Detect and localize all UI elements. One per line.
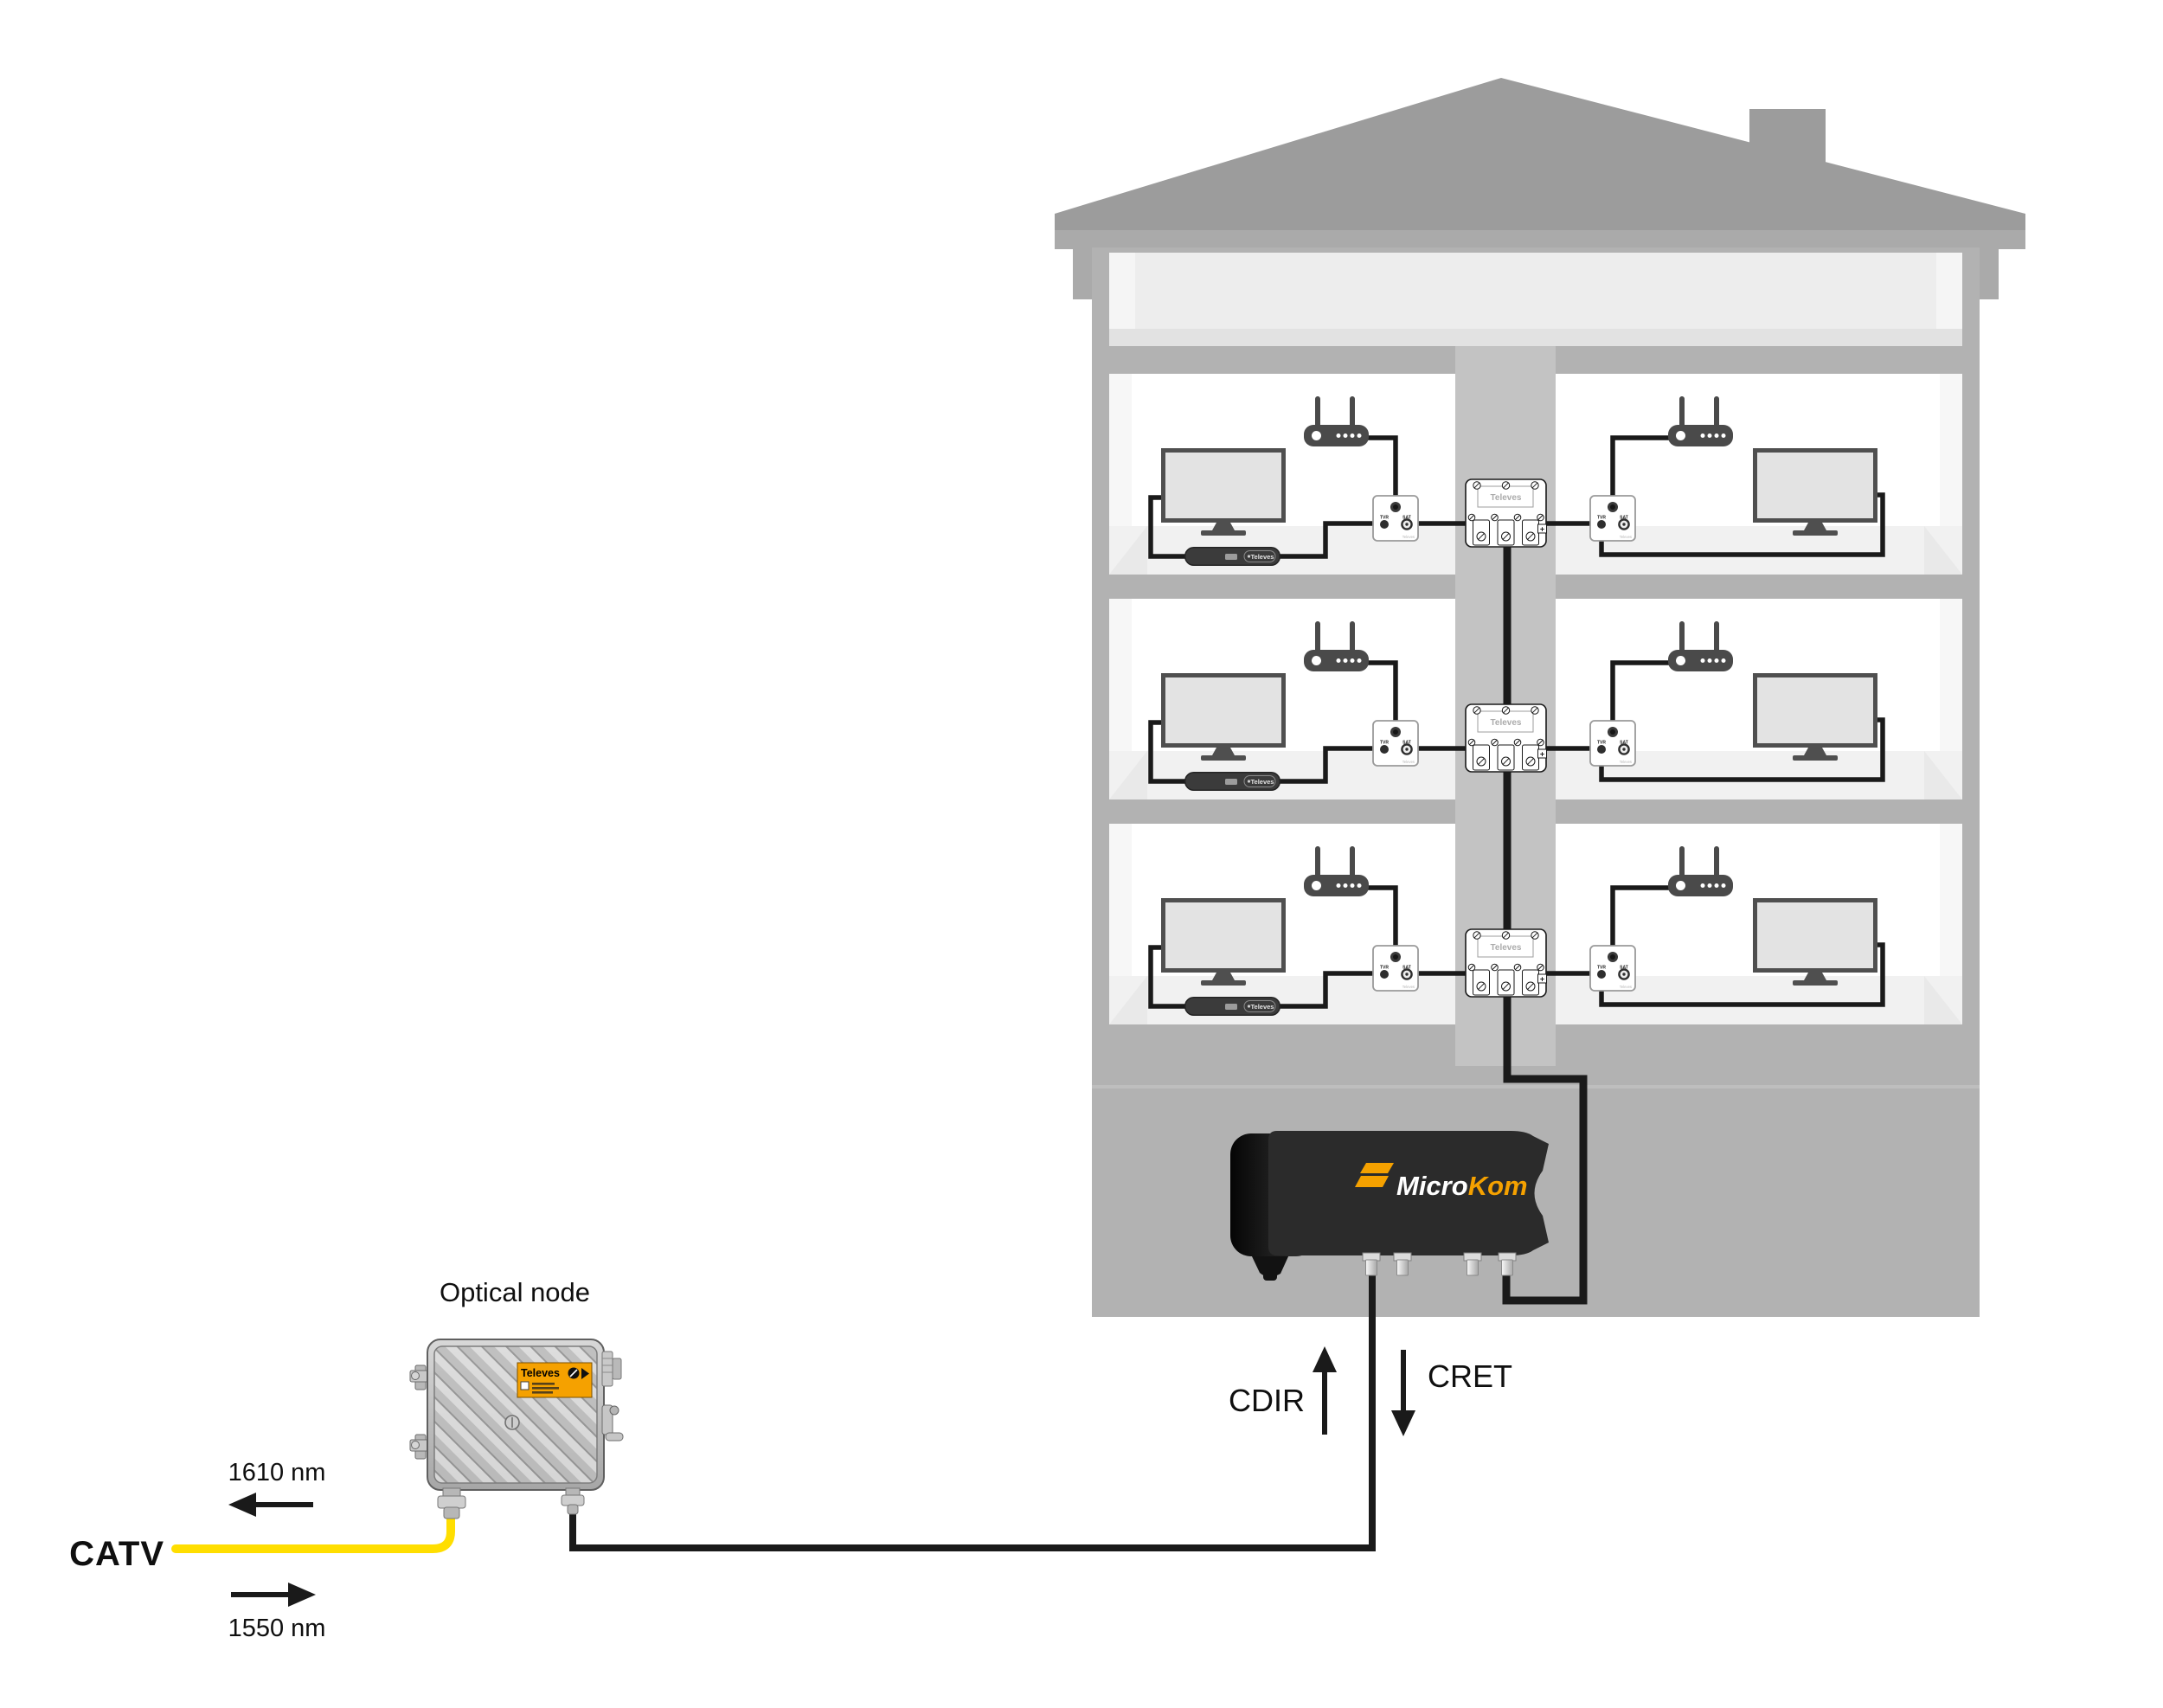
wavelength-1610-label: 1610 nm <box>208 1459 346 1487</box>
catv-label: CATV <box>26 1535 164 1574</box>
cdir-label: CDIR <box>1184 1383 1305 1419</box>
cret-label: CRET <box>1428 1358 1512 1395</box>
diagram-canvas: MicroKom <box>0 0 2163 1708</box>
labels-layer: Optical node CATV 1610 nm 1550 nm CDIR C… <box>0 0 2163 1708</box>
wavelength-1550-label: 1550 nm <box>208 1615 346 1643</box>
optical-node-label: Optical node <box>372 1277 658 1308</box>
